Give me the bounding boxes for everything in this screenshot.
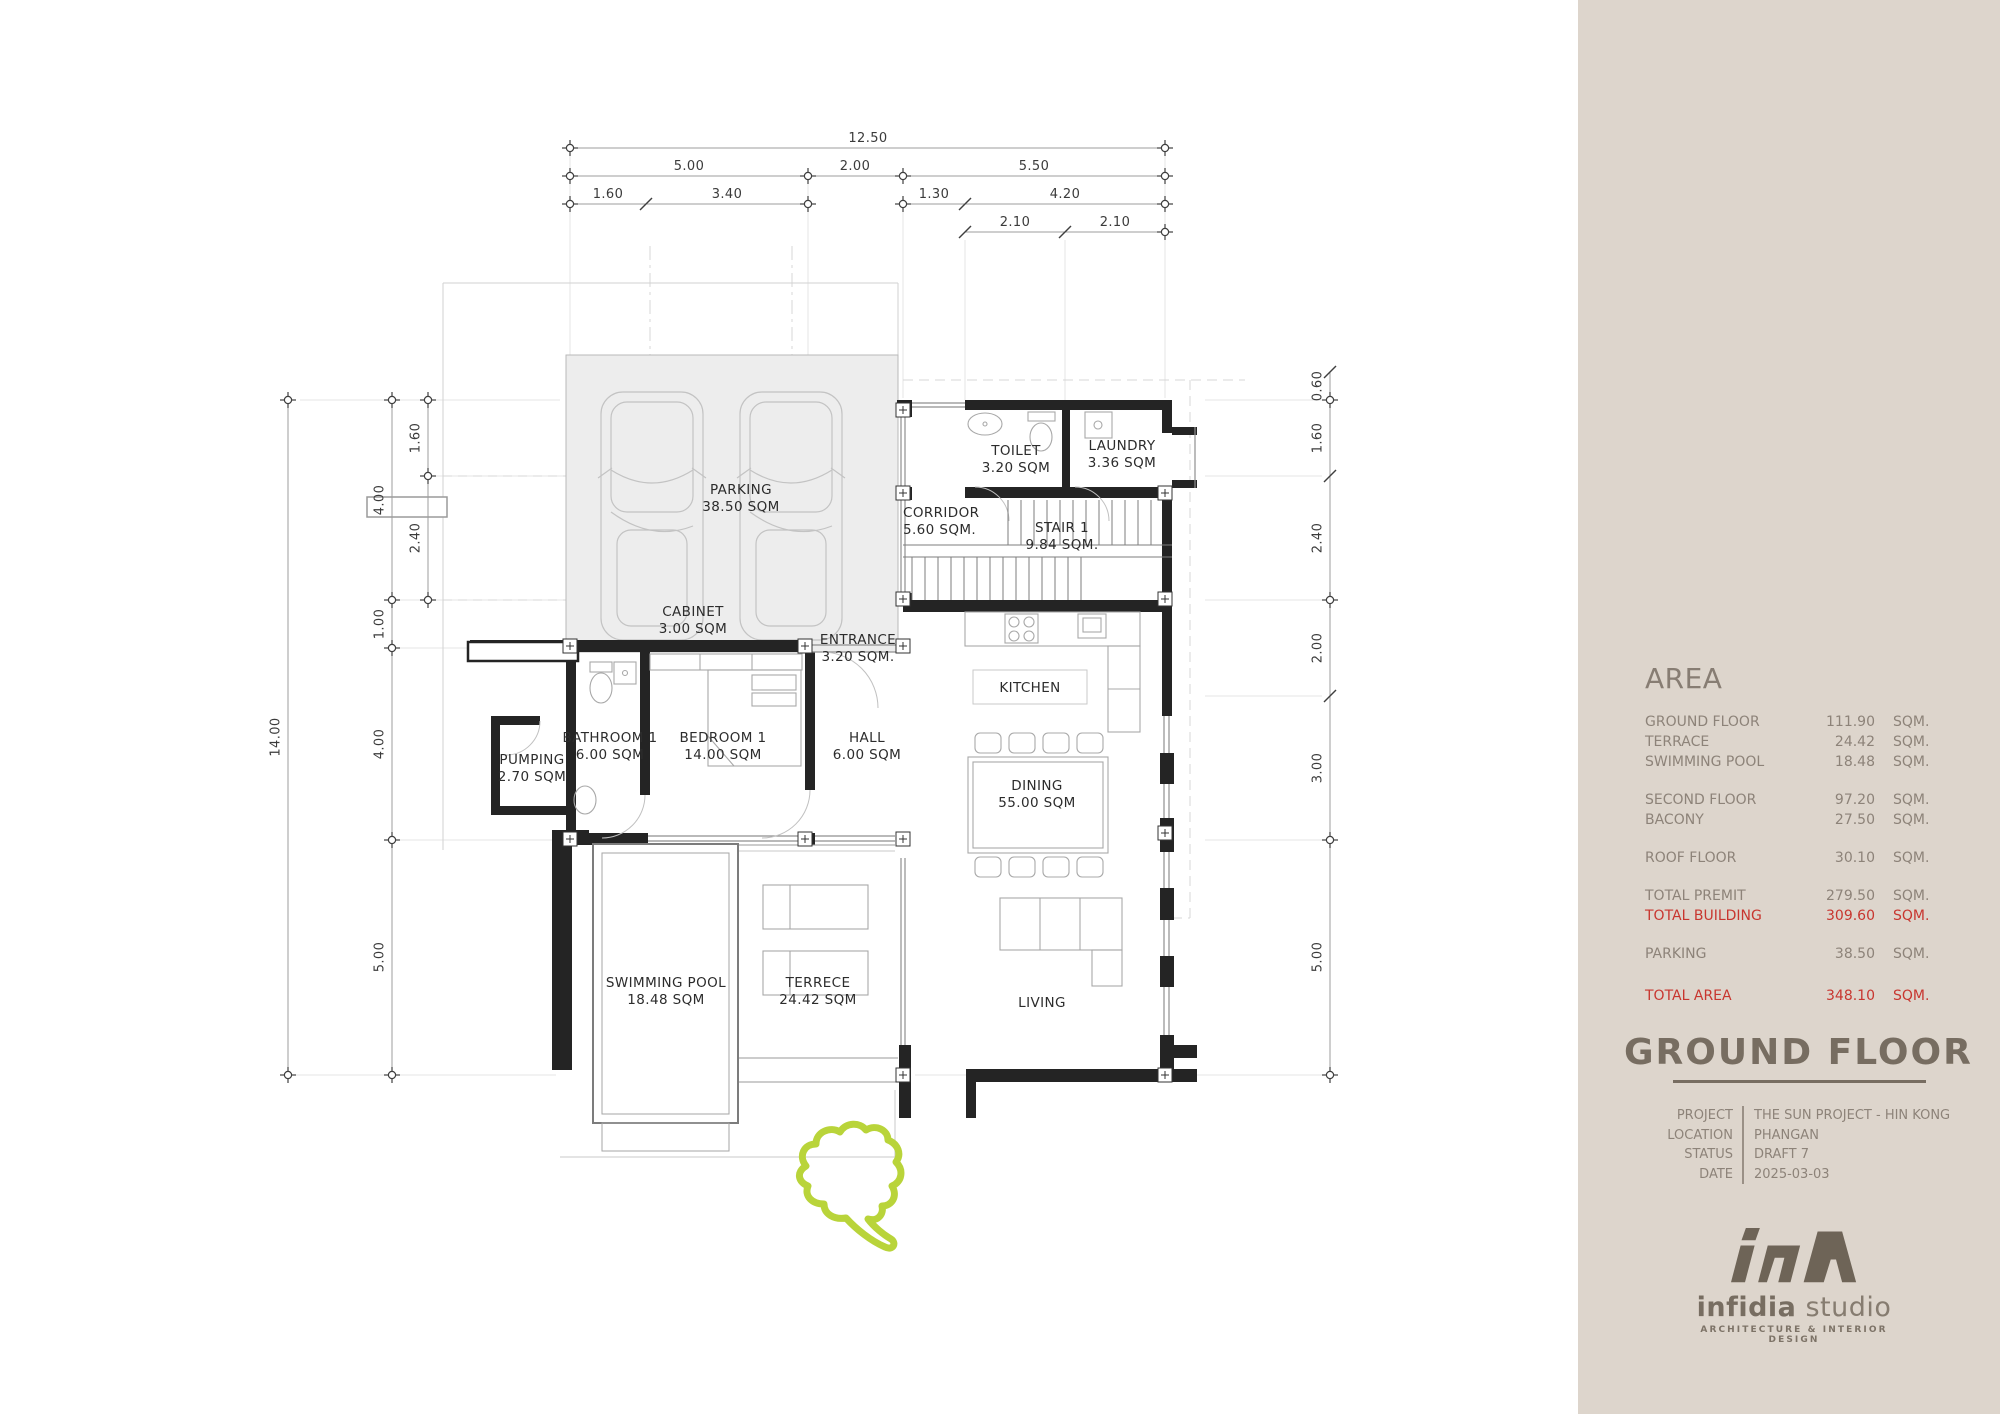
sheet-title: GROUND FLOOR xyxy=(1624,1032,1974,1073)
room-label-parking: PARKING 38.50 SQM xyxy=(702,482,779,516)
room-label-entrance: ENTRANCE 3.20 SQM. xyxy=(820,632,896,666)
chair-icon xyxy=(975,733,1001,753)
room-label-dining: DINING 55.00 SQM xyxy=(998,778,1075,812)
area-row-parking: PARKING 38.50 SQM. xyxy=(1645,944,1945,964)
sofa-icon xyxy=(1000,898,1122,950)
room-label-corridor: CORRIDOR 5.60 SQM. xyxy=(903,505,979,539)
studio-logo: infidia studio ARCHITECTURE & INTERIOR D… xyxy=(1674,1228,1914,1345)
dim-right-d: 2.00 xyxy=(1311,633,1326,664)
dim-top-a1: 1.60 xyxy=(593,187,624,202)
area-row-total-building: TOTAL BUILDING 309.60 SQM. xyxy=(1645,906,1945,926)
dim-left-c: 4.00 xyxy=(373,729,388,760)
room-label-cabinet: CABINET 3.00 SQM xyxy=(659,604,727,638)
dim-left-total: 14.00 xyxy=(269,717,284,756)
plan-geometry xyxy=(0,0,1578,1414)
area-row-balcony: BACONY 27.50 SQM. xyxy=(1645,810,1945,830)
dim-left-inner-b: 2.40 xyxy=(409,523,424,554)
area-table: GROUND FLOOR 111.90 SQM. TERRACE 24.42 S… xyxy=(1645,712,1945,1006)
dim-top-c1: 1.30 xyxy=(919,187,950,202)
floor-plan-drawing: 12.50 5.00 2.00 5.50 1.60 3.40 1.30 4.20… xyxy=(0,0,1578,1414)
studio-logo-tagline: ARCHITECTURE & INTERIOR DESIGN xyxy=(1674,1325,1914,1345)
area-row-roof-floor: ROOF FLOOR 30.10 SQM. xyxy=(1645,848,1945,868)
dim-top-c: 5.50 xyxy=(1019,159,1050,174)
shower-icon xyxy=(614,662,636,684)
studio-logo-mark-icon xyxy=(1714,1228,1874,1284)
sidebar: AREA GROUND FLOOR 111.90 SQM. TERRACE 24… xyxy=(1578,0,2000,1414)
dim-right-a: 0.60 xyxy=(1311,371,1326,402)
room-label-kitchen: KITCHEN xyxy=(999,680,1060,697)
carport xyxy=(367,283,898,850)
area-title: AREA xyxy=(1645,662,1722,695)
dim-top-c2: 4.20 xyxy=(1050,187,1081,202)
title-block-fields: PROJECT THE SUN PROJECT - HIN KONG LOCAT… xyxy=(1578,1106,2000,1184)
planter-wall xyxy=(468,642,578,661)
area-row-terrace: TERRACE 24.42 SQM. xyxy=(1645,732,1945,752)
room-label-bathroom: BATHROOM 1 6.00 SQM xyxy=(562,730,657,764)
field-status: STATUS DRAFT 7 xyxy=(1578,1145,2000,1165)
dim-top-c2a: 2.10 xyxy=(1000,215,1031,230)
dim-top-total: 12.50 xyxy=(848,131,887,146)
room-label-hall: HALL 6.00 SQM xyxy=(833,730,901,764)
field-location: LOCATION PHANGAN xyxy=(1578,1126,2000,1146)
dim-left-inner-a: 1.60 xyxy=(409,423,424,454)
dim-right-f: 5.00 xyxy=(1311,942,1326,973)
field-project: PROJECT THE SUN PROJECT - HIN KONG xyxy=(1578,1106,2000,1126)
bush-icon xyxy=(799,1124,901,1248)
room-label-laundry: LAUNDRY 3.36 SQM xyxy=(1088,438,1156,472)
room-label-pumping: PUMPING 2.70 SQM xyxy=(498,752,566,786)
room-label-stair: STAIR 1 9.84 SQM. xyxy=(1025,520,1098,554)
washer-icon xyxy=(1085,412,1112,438)
sheet-title-rule xyxy=(1673,1080,1926,1083)
sink-icon xyxy=(968,413,1002,435)
dim-right-c: 2.40 xyxy=(1311,523,1326,554)
toilet-icon xyxy=(1028,412,1055,421)
dim-top-b: 2.00 xyxy=(840,159,871,174)
studio-logo-text: infidia studio xyxy=(1674,1292,1914,1323)
lounge-chair-icon xyxy=(763,885,868,929)
room-label-toilet: TOILET 3.20 SQM xyxy=(982,443,1050,477)
area-row-total-permit: TOTAL PREMIT 279.50 SQM. xyxy=(1645,886,1945,906)
sink-icon xyxy=(574,786,596,814)
room-label-terrace: TERRECE 24.42 SQM xyxy=(779,975,856,1009)
dim-top-c2b: 2.10 xyxy=(1100,215,1131,230)
dim-top-a2: 3.40 xyxy=(712,187,743,202)
room-label-pool: SWIMMING POOL 18.48 SQM xyxy=(606,975,726,1009)
room-label-bedroom: BEDROOM 1 14.00 SQM xyxy=(680,730,767,764)
area-row-total-area: TOTAL AREA 348.10 SQM. xyxy=(1645,986,1945,1006)
dim-left-a: 4.00 xyxy=(373,485,388,516)
dim-right-e: 3.00 xyxy=(1311,753,1326,784)
dim-top-a: 5.00 xyxy=(674,159,705,174)
cabinet-strip xyxy=(650,654,802,670)
area-row-swimming-pool: SWIMMING POOL 18.48 SQM. xyxy=(1645,752,1945,772)
area-row-ground-floor: GROUND FLOOR 111.90 SQM. xyxy=(1645,712,1945,732)
dim-left-b: 1.00 xyxy=(373,609,388,640)
room-label-living: LIVING xyxy=(1018,995,1066,1012)
dim-right-b: 1.60 xyxy=(1311,423,1326,454)
field-date: DATE 2025-03-03 xyxy=(1578,1165,2000,1185)
floor-plan-sheet: 12.50 5.00 2.00 5.50 1.60 3.40 1.30 4.20… xyxy=(0,0,2000,1414)
area-row-second-floor: SECOND FLOOR 97.20 SQM. xyxy=(1645,790,1945,810)
toilet-icon xyxy=(590,662,612,672)
dim-left-d: 5.00 xyxy=(373,942,388,973)
